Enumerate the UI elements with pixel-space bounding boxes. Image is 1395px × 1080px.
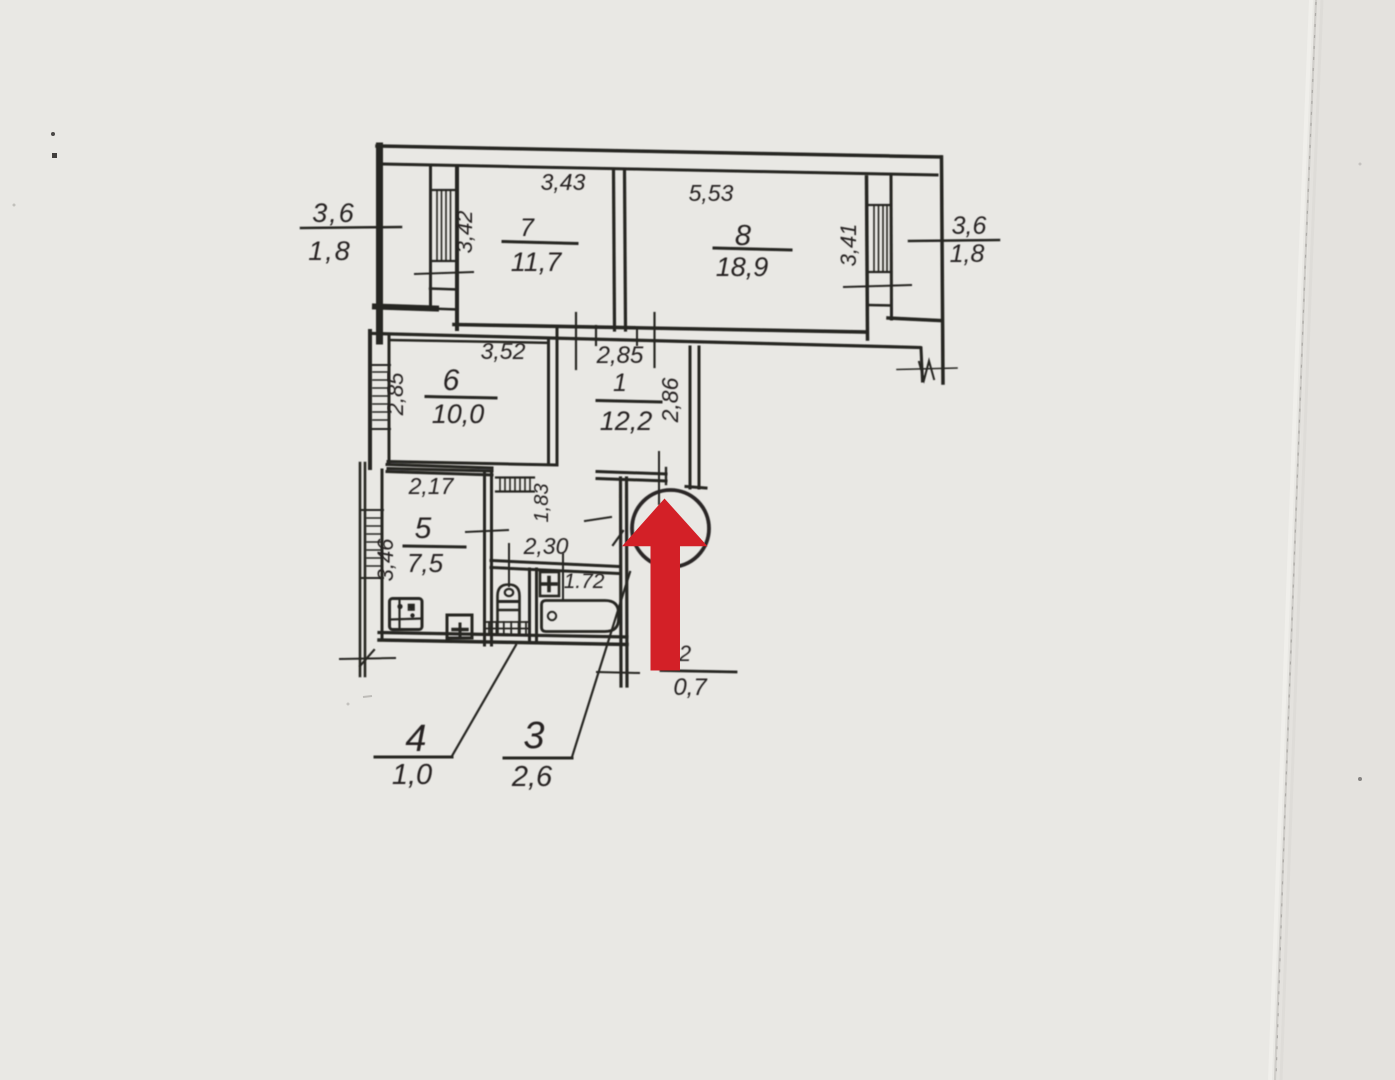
svg-text:2,86: 2,86 xyxy=(657,377,683,423)
svg-text:3,6: 3,6 xyxy=(952,212,987,240)
svg-text:3,6: 3,6 xyxy=(312,198,356,228)
svg-text:1,83: 1,83 xyxy=(531,484,553,523)
svg-text:1,0: 1,0 xyxy=(392,759,432,791)
svg-text:7,5: 7,5 xyxy=(407,548,444,578)
svg-text:3,46: 3,46 xyxy=(373,538,398,582)
svg-text:2,6: 2,6 xyxy=(511,761,553,793)
svg-text:4: 4 xyxy=(405,718,426,760)
svg-text:3,41: 3,41 xyxy=(836,224,861,267)
svg-text:12,2: 12,2 xyxy=(600,406,653,436)
svg-text:2,30: 2,30 xyxy=(523,533,569,559)
svg-text:2,85: 2,85 xyxy=(383,372,408,417)
svg-text:6: 6 xyxy=(443,364,460,397)
svg-text:1: 1 xyxy=(613,369,627,397)
svg-text:2,17: 2,17 xyxy=(408,473,455,499)
svg-text:0,7: 0,7 xyxy=(673,674,708,701)
svg-text:18,9: 18,9 xyxy=(716,252,769,282)
svg-text:11,7: 11,7 xyxy=(511,247,563,277)
svg-text:3,52: 3,52 xyxy=(481,338,526,364)
svg-text:1,8: 1,8 xyxy=(308,236,352,266)
svg-text:2,85: 2,85 xyxy=(596,342,644,369)
svg-text:1.72: 1.72 xyxy=(564,570,605,593)
svg-text:10,0: 10,0 xyxy=(432,399,485,429)
svg-text:3: 3 xyxy=(523,715,544,757)
svg-text:5,53: 5,53 xyxy=(689,180,734,206)
svg-text:8: 8 xyxy=(735,220,751,252)
svg-text:5: 5 xyxy=(415,512,432,545)
svg-text:7: 7 xyxy=(520,214,535,242)
svg-text:3,43: 3,43 xyxy=(541,169,586,195)
svg-text:1,8: 1,8 xyxy=(950,240,985,268)
svg-text:3,42: 3,42 xyxy=(452,211,477,254)
